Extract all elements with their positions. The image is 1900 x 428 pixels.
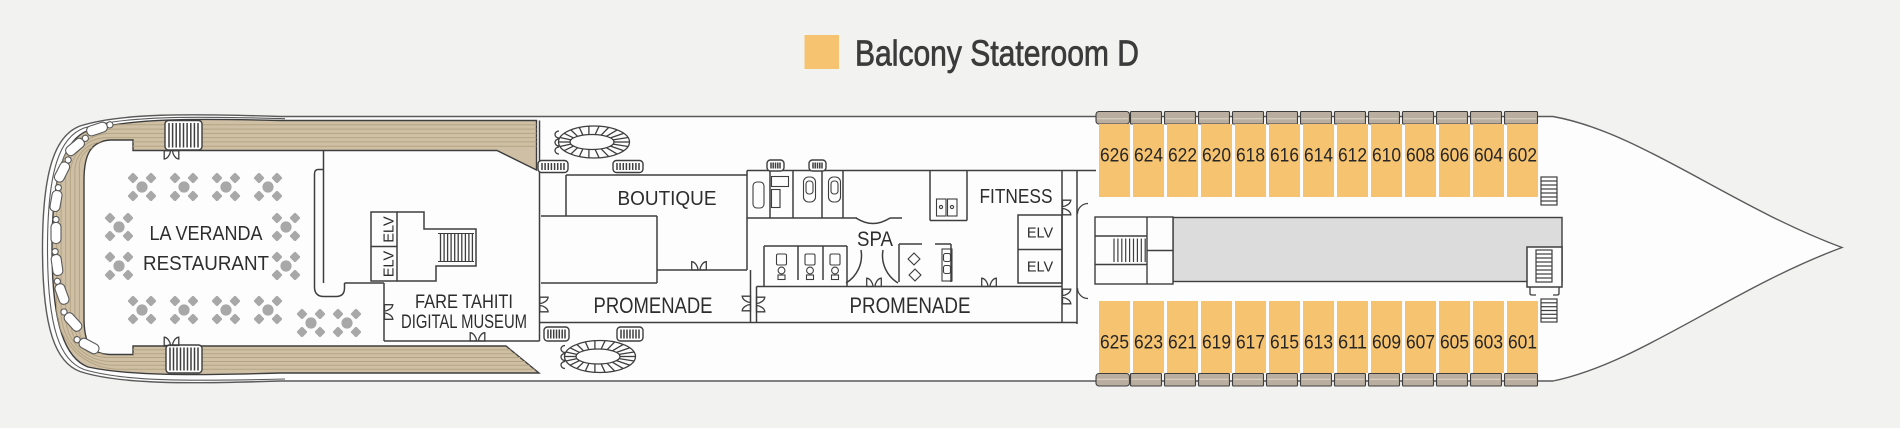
svg-text:SPA: SPA: [857, 227, 894, 251]
svg-text:PROMENADE: PROMENADE: [594, 293, 713, 318]
svg-text:606: 606: [1440, 145, 1469, 167]
svg-text:614: 614: [1304, 145, 1333, 167]
svg-text:602: 602: [1508, 145, 1537, 167]
svg-text:619: 619: [1202, 332, 1231, 354]
svg-text:601: 601: [1508, 332, 1537, 354]
svg-text:625: 625: [1100, 332, 1129, 354]
svg-text:612: 612: [1338, 145, 1367, 167]
svg-text:DIGITAL MUSEUM: DIGITAL MUSEUM: [401, 311, 527, 333]
svg-text:622: 622: [1168, 145, 1197, 167]
svg-text:623: 623: [1134, 332, 1163, 354]
svg-text:615: 615: [1270, 332, 1299, 354]
svg-text:621: 621: [1168, 332, 1197, 354]
svg-text:624: 624: [1134, 145, 1163, 167]
svg-text:ELV: ELV: [382, 216, 398, 243]
svg-text:617: 617: [1236, 332, 1265, 354]
svg-text:608: 608: [1406, 145, 1435, 167]
svg-text:ELV: ELV: [1027, 260, 1054, 276]
svg-text:FARE TAHITI: FARE TAHITI: [415, 291, 513, 313]
svg-text:610: 610: [1372, 145, 1401, 167]
svg-text:618: 618: [1236, 145, 1265, 167]
svg-text:616: 616: [1270, 145, 1299, 167]
svg-text:RESTAURANT: RESTAURANT: [143, 252, 269, 275]
svg-text:607: 607: [1406, 332, 1435, 354]
svg-text:Balcony Stateroom D: Balcony Stateroom D: [855, 33, 1139, 74]
svg-text:PROMENADE: PROMENADE: [850, 293, 971, 318]
svg-text:603: 603: [1474, 332, 1503, 354]
svg-text:613: 613: [1304, 332, 1333, 354]
svg-text:620: 620: [1202, 145, 1231, 167]
svg-text:ELV: ELV: [382, 251, 398, 278]
svg-text:604: 604: [1474, 145, 1503, 167]
svg-text:605: 605: [1440, 332, 1469, 354]
svg-text:FITNESS: FITNESS: [980, 185, 1053, 208]
svg-text:ELV: ELV: [1027, 226, 1054, 242]
svg-text:611: 611: [1338, 332, 1367, 354]
svg-text:609: 609: [1372, 332, 1401, 354]
svg-text:626: 626: [1100, 145, 1129, 167]
svg-text:BOUTIQUE: BOUTIQUE: [618, 187, 717, 210]
svg-text:LA VERANDA: LA VERANDA: [150, 222, 263, 245]
